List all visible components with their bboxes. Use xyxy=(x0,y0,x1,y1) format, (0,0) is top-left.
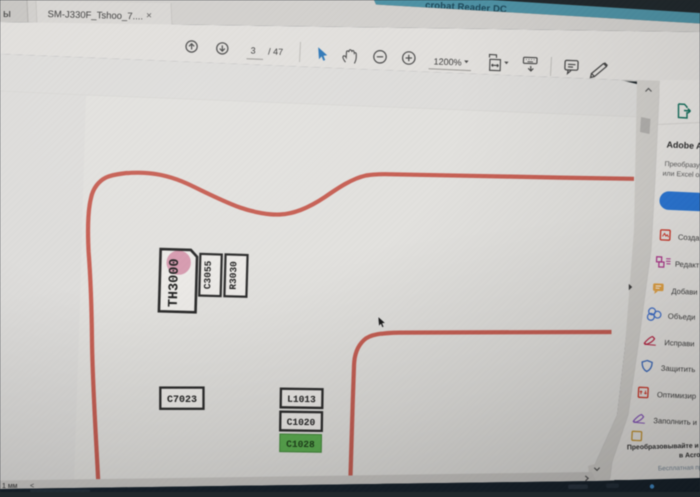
svg-text:в Acrob: в Acrob xyxy=(679,452,700,460)
svg-text:ы: ы xyxy=(3,8,11,20)
svg-text:C1020: C1020 xyxy=(287,417,316,428)
svg-text:/ 47: / 47 xyxy=(268,47,283,58)
svg-text:Созда: Созда xyxy=(678,233,700,243)
svg-text:C7023: C7023 xyxy=(167,395,197,406)
svg-text:Исправи: Исправи xyxy=(664,338,694,348)
svg-text:Редакт: Редакт xyxy=(675,260,700,270)
svg-text:3: 3 xyxy=(250,46,255,56)
svg-text:C3055: C3055 xyxy=(202,260,214,289)
svg-text:×: × xyxy=(146,11,152,22)
svg-text:Защитить: Защитить xyxy=(661,364,696,374)
svg-text:C1028: C1028 xyxy=(286,439,315,450)
svg-text:R3030: R3030 xyxy=(228,261,240,290)
svg-text:Заполнить и: Заполнить и xyxy=(653,416,697,427)
svg-text:L1013: L1013 xyxy=(287,394,316,405)
svg-text:1200%: 1200% xyxy=(433,57,461,68)
svg-text:Бесплатная про: Бесплатная про xyxy=(658,464,700,472)
svg-text:Объеди: Объеди xyxy=(668,312,696,322)
svg-text:TH3000: TH3000 xyxy=(167,258,183,307)
svg-text:Оптимизир: Оптимизир xyxy=(657,390,697,401)
svg-text:Добави: Добави xyxy=(671,287,698,297)
